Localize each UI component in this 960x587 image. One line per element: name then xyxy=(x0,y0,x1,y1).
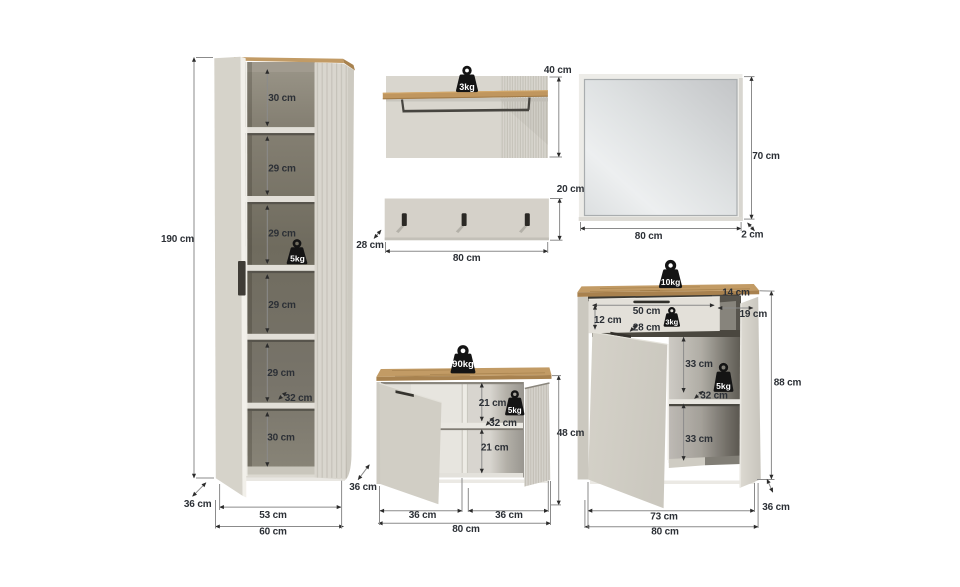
svg-text:3kg: 3kg xyxy=(459,82,475,92)
svg-text:29 cm: 29 cm xyxy=(268,300,296,311)
svg-text:70 cm: 70 cm xyxy=(752,151,780,162)
svg-text:19 cm: 19 cm xyxy=(739,309,767,320)
svg-text:36 cm: 36 cm xyxy=(349,482,377,493)
svg-text:5kg: 5kg xyxy=(716,381,731,391)
svg-text:30 cm: 30 cm xyxy=(267,433,295,444)
svg-text:80 cm: 80 cm xyxy=(453,253,481,264)
svg-text:32 cm: 32 cm xyxy=(489,418,517,429)
svg-text:5kg: 5kg xyxy=(508,406,522,415)
svg-text:20 cm: 20 cm xyxy=(557,184,585,195)
svg-text:12 cm: 12 cm xyxy=(594,315,622,326)
svg-text:48 cm: 48 cm xyxy=(557,428,585,439)
svg-text:32 cm: 32 cm xyxy=(285,393,313,404)
svg-text:21 cm: 21 cm xyxy=(479,398,507,409)
svg-text:10kg: 10kg xyxy=(661,277,680,287)
svg-text:80 cm: 80 cm xyxy=(635,231,663,242)
svg-text:50 cm: 50 cm xyxy=(633,306,661,317)
svg-text:80 cm: 80 cm xyxy=(651,527,679,538)
svg-text:88 cm: 88 cm xyxy=(774,378,802,389)
svg-text:80 cm: 80 cm xyxy=(452,524,480,535)
svg-text:73 cm: 73 cm xyxy=(650,512,678,523)
svg-text:33 cm: 33 cm xyxy=(685,434,713,445)
svg-text:3kg: 3kg xyxy=(665,317,678,326)
svg-text:40 cm: 40 cm xyxy=(544,65,572,76)
svg-text:36 cm: 36 cm xyxy=(495,510,523,521)
svg-text:32 cm: 32 cm xyxy=(700,391,728,402)
svg-text:36 cm: 36 cm xyxy=(762,502,790,513)
svg-text:28 cm: 28 cm xyxy=(633,322,661,333)
svg-text:21 cm: 21 cm xyxy=(481,443,509,454)
svg-text:36 cm: 36 cm xyxy=(184,499,212,510)
svg-text:33 cm: 33 cm xyxy=(685,359,713,370)
svg-text:90kg: 90kg xyxy=(452,359,474,370)
svg-text:5kg: 5kg xyxy=(290,253,305,263)
svg-text:28 cm: 28 cm xyxy=(356,240,384,251)
svg-text:14 cm: 14 cm xyxy=(722,288,750,299)
svg-text:53 cm: 53 cm xyxy=(259,510,287,521)
svg-text:29 cm: 29 cm xyxy=(268,229,296,240)
svg-text:190 cm: 190 cm xyxy=(161,234,194,245)
svg-text:60 cm: 60 cm xyxy=(259,527,287,538)
svg-text:29 cm: 29 cm xyxy=(267,368,295,379)
svg-text:36 cm: 36 cm xyxy=(409,510,437,521)
svg-text:30 cm: 30 cm xyxy=(268,93,296,104)
svg-text:29 cm: 29 cm xyxy=(268,164,296,175)
svg-text:2 cm: 2 cm xyxy=(741,230,763,241)
